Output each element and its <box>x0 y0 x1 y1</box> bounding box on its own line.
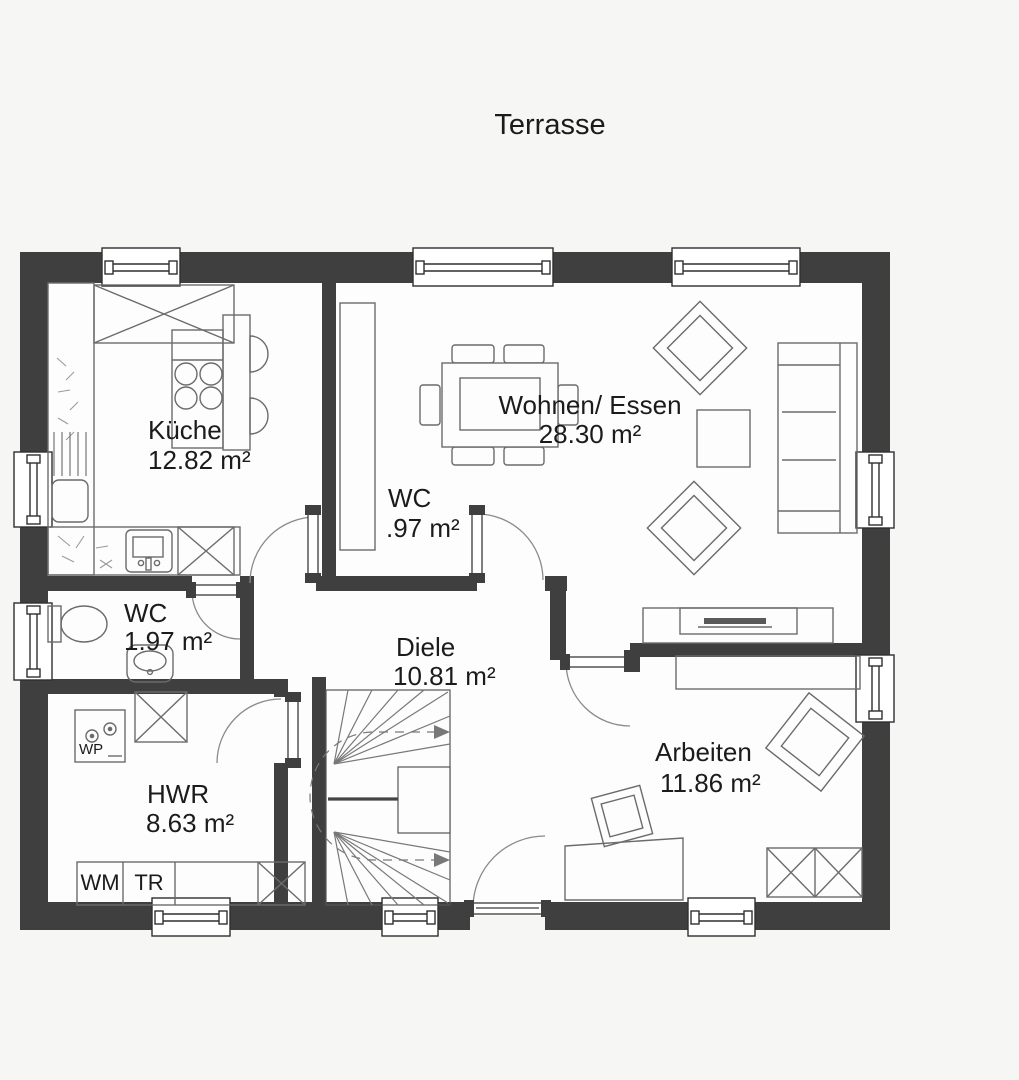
dryer-label: TR <box>127 871 171 895</box>
room-area-diele: 10.81 m² <box>393 662 496 691</box>
room-label-hwr: HWR <box>147 780 209 809</box>
room-area-arbeiten: 11.86 m² <box>660 769 761 798</box>
room-label-kueche: Küche <box>148 416 222 445</box>
floorplan-canvas: Terrasse Küche 12.82 m² Wohnen/ Essen 28… <box>0 0 1019 1080</box>
room-label-wc-klein: WC <box>388 484 431 513</box>
room-label-wc: WC <box>124 599 167 628</box>
room-area-kueche: 12.82 m² <box>148 446 251 475</box>
room-area-wc: 1.97 m² <box>124 627 212 656</box>
heatpump-label: WP <box>79 742 103 759</box>
room-area-hwr: 8.63 m² <box>146 809 234 838</box>
floorplan-drawing <box>0 0 1019 1080</box>
washer-label: WM <box>78 871 122 895</box>
room-area-wohnen: 28.30 m² <box>475 420 705 449</box>
terrace-label: Terrasse <box>430 110 670 142</box>
room-label-arbeiten: Arbeiten <box>655 738 752 767</box>
room-label-diele: Diele <box>396 633 455 662</box>
room-area-wc-klein: .97 m² <box>386 514 460 543</box>
room-label-wohnen: Wohnen/ Essen <box>475 391 705 420</box>
